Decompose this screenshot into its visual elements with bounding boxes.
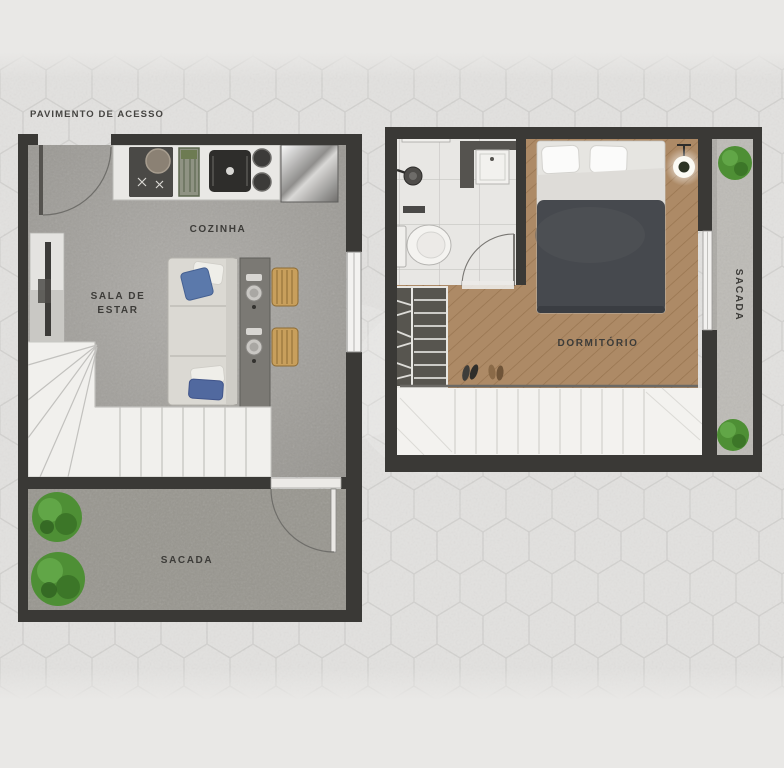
floor-plan-poster: PAVIMENTO DE ACESSO	[0, 0, 784, 768]
wall	[346, 134, 362, 252]
upper-balcony-label: SACADA	[733, 269, 744, 321]
bedroom-label: DORMITÓRIO	[558, 336, 639, 349]
plant-icon	[717, 419, 749, 451]
wall	[753, 127, 762, 472]
kitchen-label: COZINHA	[190, 224, 247, 235]
band-fade-top	[0, 52, 784, 78]
sliding-door	[703, 231, 712, 330]
wall	[111, 134, 362, 145]
pillow	[590, 145, 628, 173]
closet-shelves	[389, 287, 447, 387]
refrigerator	[281, 145, 338, 202]
stool	[272, 328, 298, 366]
shower-half-wall	[403, 206, 425, 213]
floor-plan-canvas: PAVIMENTO DE ACESSO	[0, 0, 784, 768]
stool	[272, 268, 298, 306]
plant-icon	[32, 492, 82, 542]
wall	[18, 610, 362, 622]
band-fade-bottom	[0, 668, 784, 700]
toilet	[389, 225, 451, 267]
pillow	[541, 145, 579, 174]
wall	[18, 134, 28, 622]
wall	[385, 127, 397, 472]
floor-plan-access: COZINHA SALA DE ESTAR	[18, 134, 362, 622]
kitchen-counter	[113, 145, 338, 202]
upper-balcony-texture	[712, 139, 753, 455]
burner-icon	[253, 149, 271, 167]
svg-text:ESTAR: ESTAR	[97, 305, 138, 316]
double-bed	[535, 141, 665, 313]
floor-plan-upper: DORMITÓRIO SACADA	[385, 127, 762, 472]
tv-panel	[30, 233, 64, 343]
window	[347, 252, 361, 352]
wall	[702, 330, 717, 455]
staircase-upper	[397, 388, 702, 455]
bar-table	[240, 258, 270, 408]
wall	[385, 127, 762, 139]
kitchen-sink	[129, 147, 173, 197]
floor-title: PAVIMENTO DE ACESSO	[30, 109, 164, 120]
wall	[516, 139, 526, 285]
dish-rack	[179, 148, 199, 196]
wall	[385, 455, 762, 472]
access-balcony-label: SACADA	[161, 555, 213, 566]
wall	[341, 477, 362, 489]
svg-text:SALA DE: SALA DE	[91, 291, 146, 302]
plant-icon	[31, 552, 85, 606]
wall	[698, 139, 712, 231]
sofa	[168, 258, 237, 405]
wall	[18, 477, 271, 489]
sofa-pillows-bottom	[188, 365, 225, 400]
burner-icon	[253, 173, 271, 191]
plant-icon	[718, 146, 752, 180]
